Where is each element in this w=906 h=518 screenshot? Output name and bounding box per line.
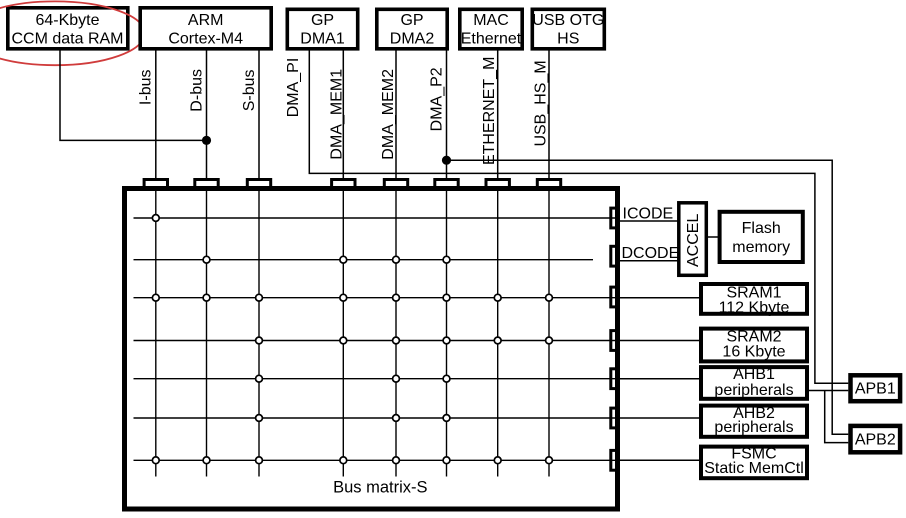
- svg-text:D-bus: D-bus: [189, 69, 206, 112]
- svg-text:DMA_MEM2: DMA_MEM2: [380, 69, 397, 160]
- svg-text:GP: GP: [311, 12, 334, 29]
- svg-text:USB OTG: USB OTG: [532, 12, 604, 29]
- svg-text:APB1: APB1: [855, 381, 896, 398]
- svg-text:S-bus: S-bus: [241, 70, 258, 112]
- svg-text:16 Kbyte: 16 Kbyte: [722, 344, 785, 361]
- svg-text:MAC: MAC: [473, 12, 509, 29]
- svg-text:DMA_P2: DMA_P2: [429, 67, 446, 131]
- svg-text:64-Kbyte: 64-Kbyte: [35, 12, 99, 29]
- svg-text:ETHERNET_M: ETHERNET_M: [481, 57, 498, 165]
- svg-text:HS: HS: [557, 31, 579, 48]
- svg-text:ARM: ARM: [188, 12, 224, 29]
- svg-text:Static MemCtl: Static MemCtl: [704, 460, 804, 477]
- svg-text:GP: GP: [400, 12, 423, 29]
- svg-text:Bus matrix-S: Bus matrix-S: [333, 479, 427, 497]
- svg-text:AHB1: AHB1: [733, 366, 775, 383]
- svg-text:CCM data RAM: CCM data RAM: [11, 31, 123, 48]
- svg-text:Flash: Flash: [742, 220, 781, 237]
- svg-text:ACCEL: ACCEL: [685, 214, 702, 267]
- svg-text:memory: memory: [732, 239, 790, 256]
- svg-text:peripherals: peripherals: [714, 419, 793, 436]
- svg-text:Ethernet: Ethernet: [461, 31, 522, 48]
- svg-text:USB_HS_M: USB_HS_M: [533, 60, 550, 146]
- svg-text:DCODE: DCODE: [622, 245, 680, 262]
- svg-text:DMA1: DMA1: [300, 31, 345, 48]
- svg-text:ICODE: ICODE: [623, 206, 674, 223]
- svg-text:I-bus: I-bus: [138, 70, 155, 106]
- svg-text:DMA2: DMA2: [390, 31, 435, 48]
- svg-text:112 Kbyte: 112 Kbyte: [719, 300, 790, 317]
- svg-text:DMA_PI: DMA_PI: [285, 58, 302, 118]
- svg-text:APB2: APB2: [855, 431, 896, 448]
- svg-text:Cortex-M4: Cortex-M4: [168, 31, 243, 48]
- svg-text:peripherals: peripherals: [714, 382, 793, 399]
